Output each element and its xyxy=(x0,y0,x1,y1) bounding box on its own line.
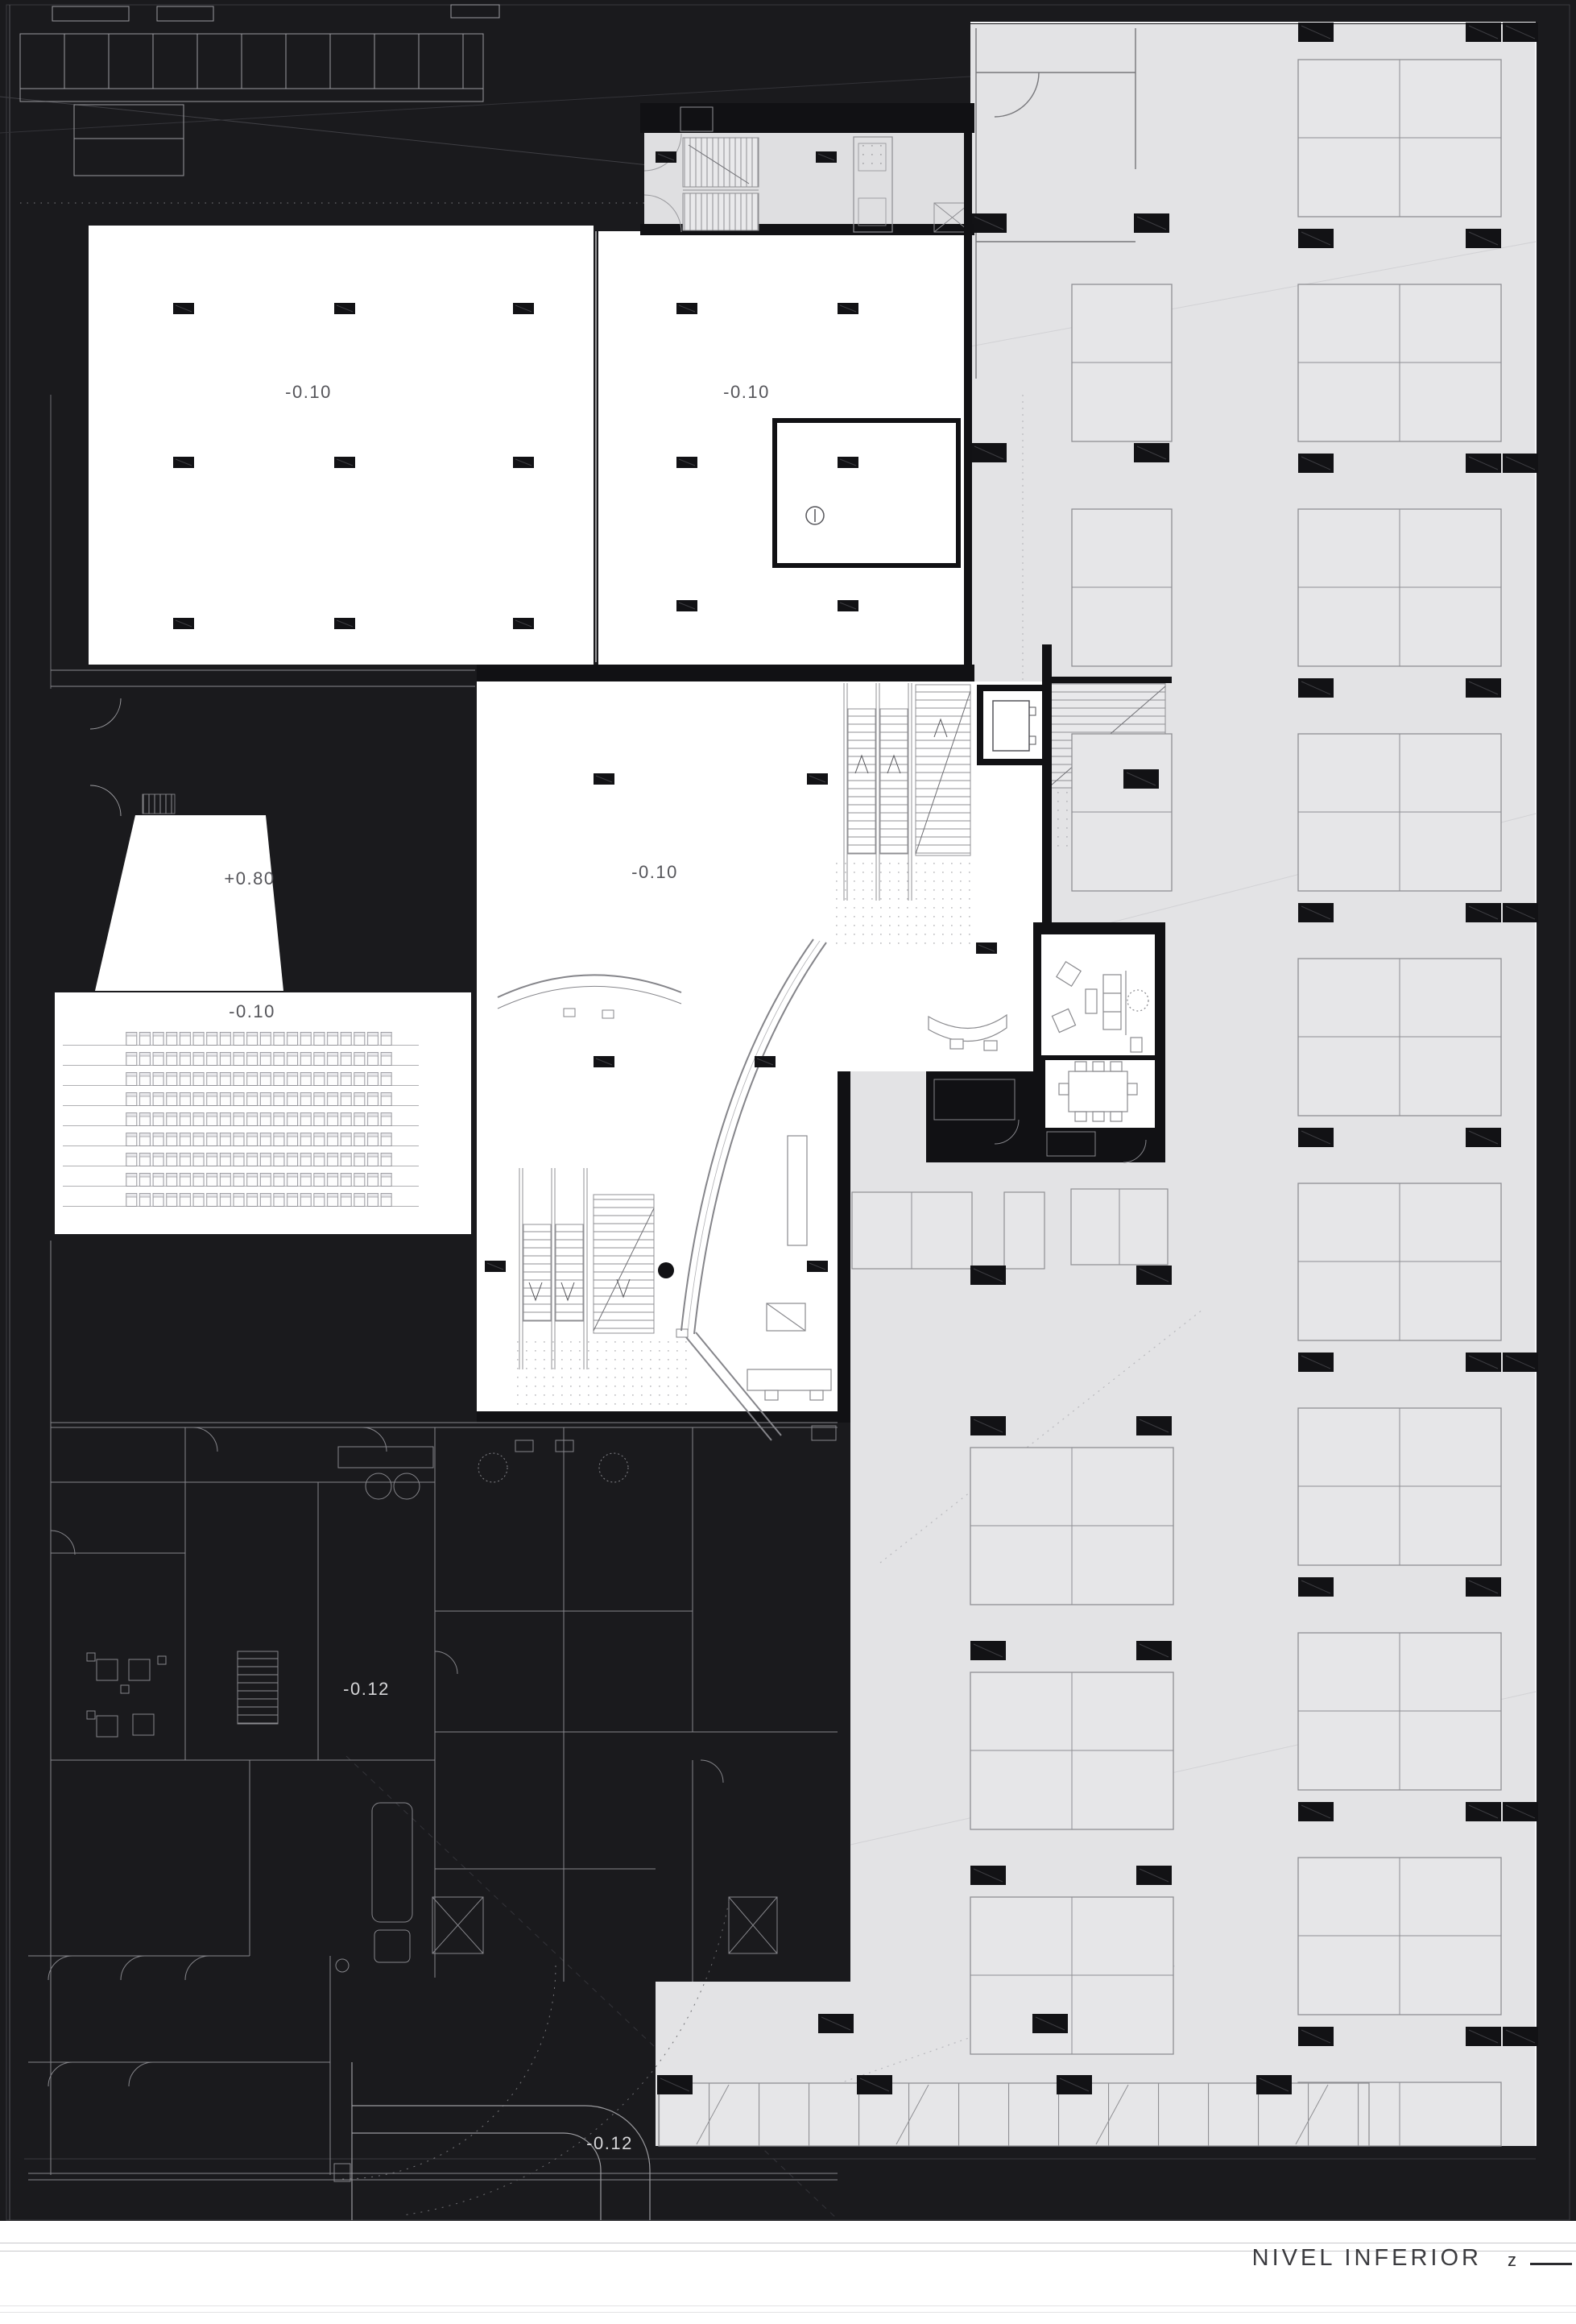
level-label-services: -0.12 xyxy=(343,1679,390,1699)
info-room xyxy=(775,420,958,565)
divider xyxy=(0,2243,1576,2243)
north-arrow-line xyxy=(1530,2263,1572,2265)
level-label-hall-west: -0.10 xyxy=(285,382,332,402)
upper-corridor xyxy=(640,103,974,235)
elevator xyxy=(977,685,1049,765)
stair-upper xyxy=(916,685,970,855)
divider xyxy=(0,2305,1576,2306)
auditorium-block xyxy=(48,670,477,1241)
level-label-ramp: -0.12 xyxy=(586,2133,633,2153)
drawing-sheet: { "sheet": { "title": "NIVEL INFERIOR", … xyxy=(0,0,1576,2320)
level-label-stage: +0.80 xyxy=(224,868,275,889)
meeting-room xyxy=(1045,1060,1155,1128)
title-strip: NIVEL INFERIOR z xyxy=(0,2221,1576,2320)
auditorium-seating xyxy=(55,992,471,1234)
corridor-stair xyxy=(683,138,759,230)
north-arrow-icon: z xyxy=(1508,2250,1516,2271)
floor-plan-drawing: -0.10 -0.10 -0.10 +0.80 -0.10 -0.12 -0.1… xyxy=(0,0,1576,2324)
divider xyxy=(0,2312,1576,2313)
level-label-hall-east: -0.10 xyxy=(723,382,770,402)
stair-lower xyxy=(594,1195,654,1333)
lounge xyxy=(1041,934,1155,1055)
level-label-foyer: -0.10 xyxy=(631,862,678,882)
hall-west xyxy=(89,226,596,665)
level-label-auditorium: -0.10 xyxy=(229,1001,275,1021)
sheet-title: NIVEL INFERIOR xyxy=(1252,2245,1482,2272)
